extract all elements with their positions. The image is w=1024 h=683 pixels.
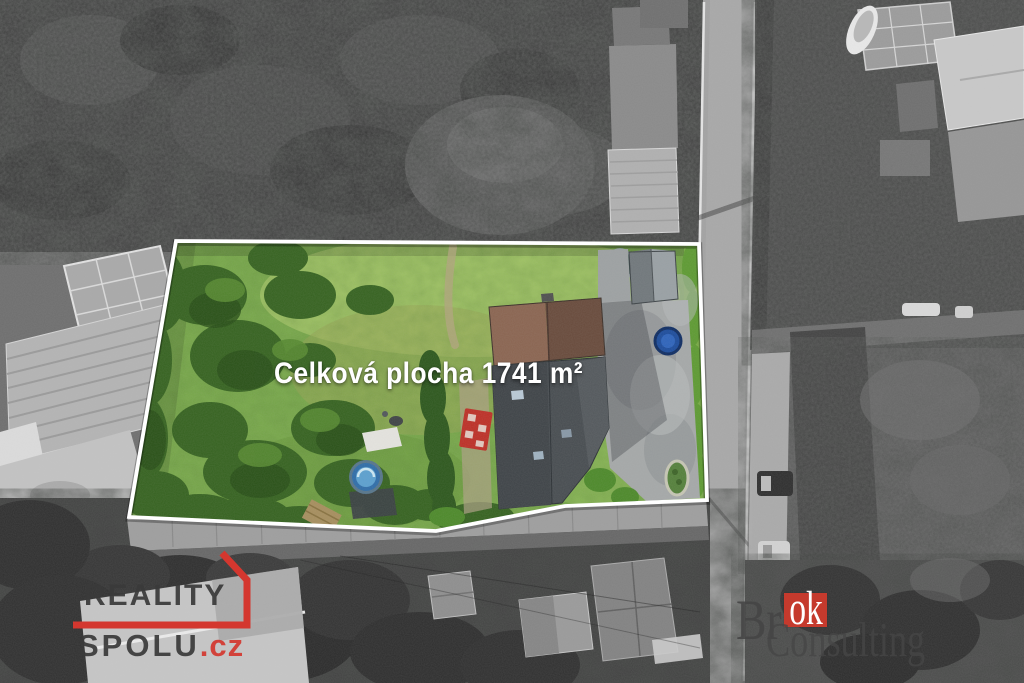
reality-spolu-logo: REALITY SPOLU.cz <box>0 548 290 683</box>
reality-spolu-domain-suffix: .cz <box>200 628 244 663</box>
reality-spolu-word: SPOLU <box>78 628 200 663</box>
reality-spolu-wordmark-bottom: SPOLU.cz <box>78 628 244 664</box>
aerial-property-screenshot: Celková plocha 1741 m² REALITY SPOLU.cz … <box>0 0 1024 683</box>
reality-spolu-wordmark-top: REALITY <box>84 579 226 613</box>
area-label: Celková plocha 1741 m² <box>274 357 583 391</box>
brok-consulting-logo: Br ok Consulting <box>733 585 993 680</box>
brok-wordmark-consulting: Consulting <box>766 615 925 664</box>
